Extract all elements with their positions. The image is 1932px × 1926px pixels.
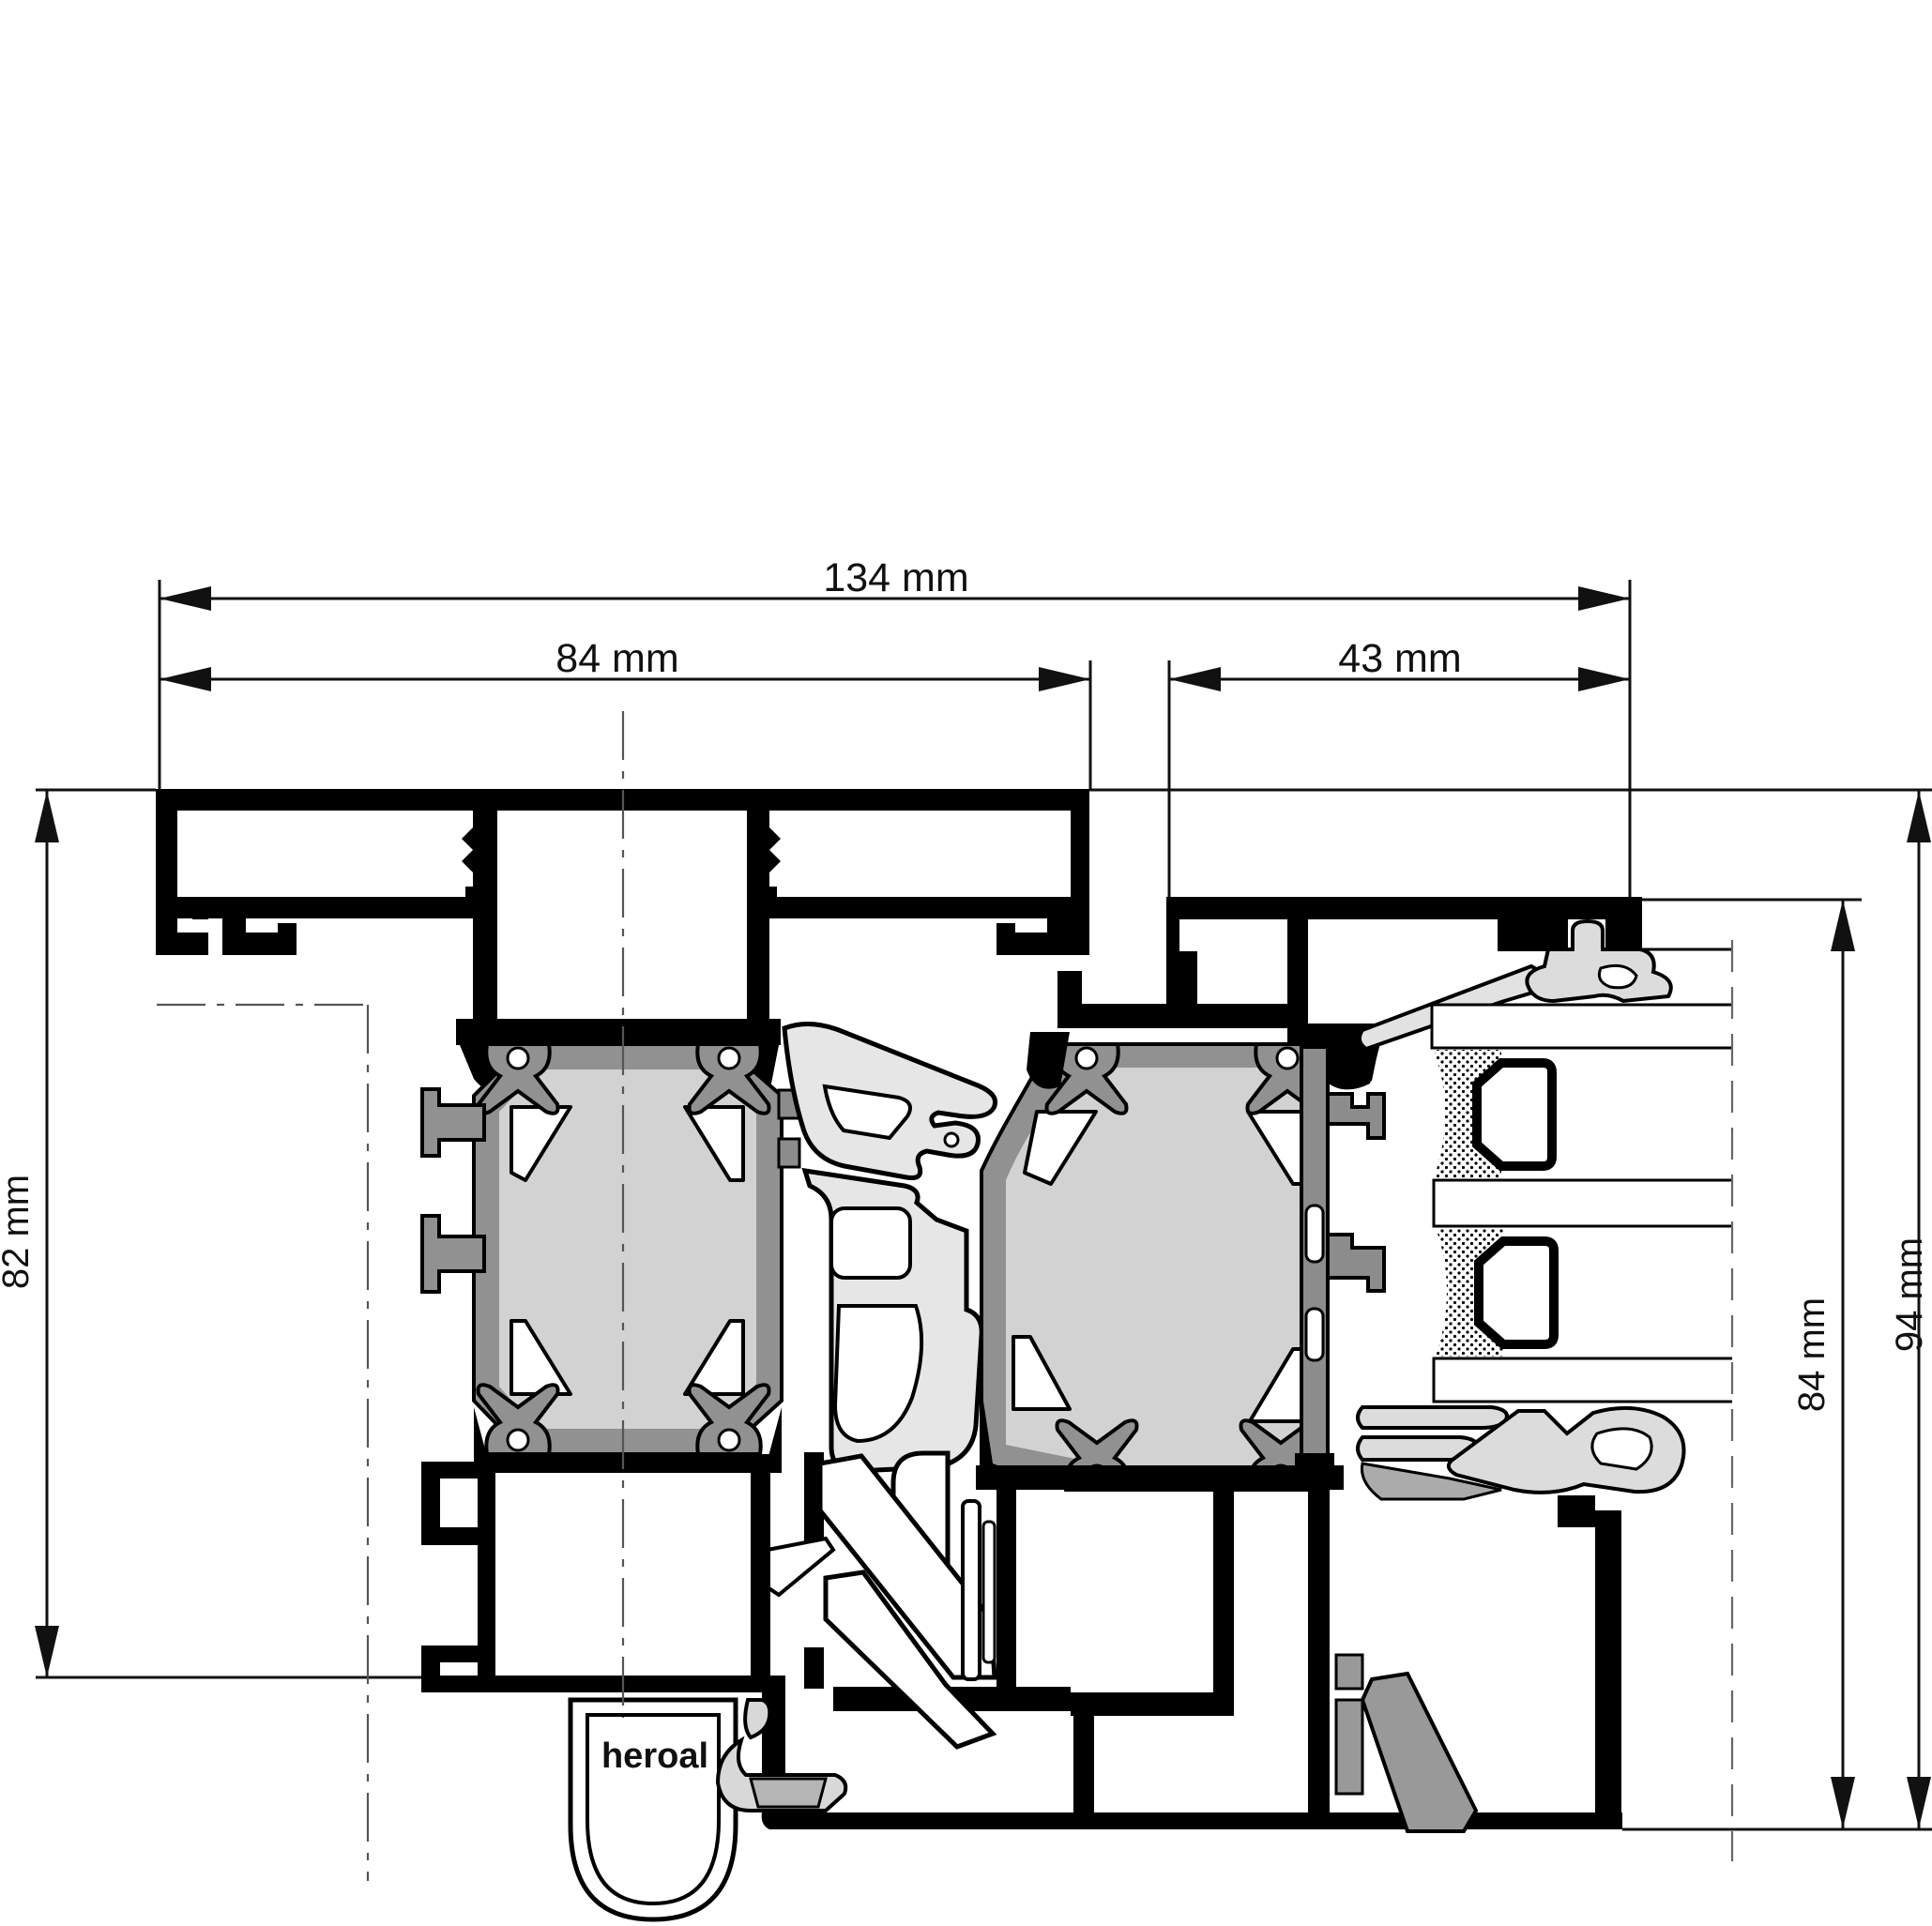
svg-text:84 mm: 84 mm: [555, 636, 678, 681]
svg-text:134 mm: 134 mm: [823, 555, 968, 600]
svg-text:heroal: heroal: [601, 1736, 708, 1776]
svg-text:82 mm: 82 mm: [0, 1175, 37, 1289]
svg-text:84 mm: 84 mm: [1791, 1297, 1833, 1412]
svg-text:43 mm: 43 mm: [1338, 636, 1461, 681]
svg-text:94 mm: 94 mm: [1889, 1237, 1930, 1352]
